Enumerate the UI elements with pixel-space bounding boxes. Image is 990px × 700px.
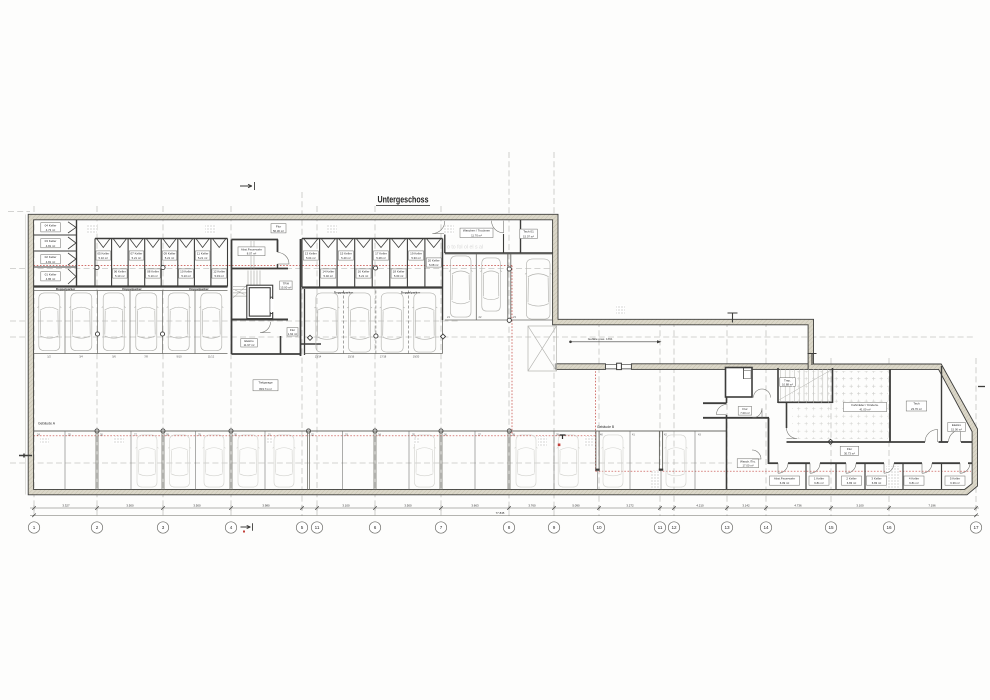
svg-text:5.04 m²: 5.04 m² xyxy=(306,256,316,260)
svg-text:3.500: 3.500 xyxy=(404,504,412,508)
svg-text:3.100: 3.100 xyxy=(856,504,864,508)
svg-text:20 Keller: 20 Keller xyxy=(428,259,440,263)
svg-text:10 Keller: 10 Keller xyxy=(180,270,192,274)
svg-text:56.30 m²: 56.30 m² xyxy=(273,229,284,233)
svg-text:4.81 m²: 4.81 m² xyxy=(46,260,56,264)
svg-text:5.40 m²: 5.40 m² xyxy=(341,256,351,260)
svg-text:30.73 m²: 30.73 m² xyxy=(844,451,855,455)
svg-text:02 Keller: 02 Keller xyxy=(45,255,57,259)
svg-text:2 Keller: 2 Keller xyxy=(846,477,856,481)
svg-text:3.500: 3.500 xyxy=(193,504,201,508)
svg-text:23.76 m²: 23.76 m² xyxy=(911,407,922,411)
svg-text:1.62 m²: 1.62 m² xyxy=(288,332,298,336)
svg-text:15.07 m²: 15.07 m² xyxy=(523,235,534,239)
svg-text:8: 8 xyxy=(508,525,511,530)
svg-text:3.100: 3.100 xyxy=(342,504,350,508)
svg-text:15: 15 xyxy=(828,525,834,530)
svg-text:2: 2 xyxy=(96,525,99,530)
svg-text:Tiefgarage: Tiefgarage xyxy=(258,380,273,384)
svg-text:Elektro: Elektro xyxy=(952,423,962,427)
svg-text:3.272: 3.272 xyxy=(626,504,634,508)
svg-text:5.10 m²: 5.10 m² xyxy=(115,274,125,278)
svg-text:7/8: 7/8 xyxy=(144,355,148,359)
svg-text:5.30 m²: 5.30 m² xyxy=(411,256,421,260)
svg-text:7.00 m²: 7.00 m² xyxy=(740,411,750,415)
svg-text:10: 10 xyxy=(596,525,602,530)
svg-text:3.327: 3.327 xyxy=(62,504,70,508)
svg-text:5.40 m²: 5.40 m² xyxy=(324,274,334,278)
svg-text:3.142: 3.142 xyxy=(742,504,750,508)
svg-text:4.210: 4.210 xyxy=(696,504,704,508)
svg-text:11: 11 xyxy=(315,525,320,530)
svg-text:3.500: 3.500 xyxy=(126,504,134,508)
svg-text:3.980: 3.980 xyxy=(262,504,270,508)
svg-text:01 Keller: 01 Keller xyxy=(45,272,57,276)
svg-text:4.736: 4.736 xyxy=(794,504,802,508)
svg-text:13 Keller: 13 Keller xyxy=(305,252,317,256)
svg-text:14 Keller: 14 Keller xyxy=(322,270,334,274)
svg-text:9: 9 xyxy=(553,525,556,530)
svg-text:Tech: Tech xyxy=(913,402,920,406)
svg-text:Doppelparker: Doppelparker xyxy=(56,287,76,291)
svg-text:7.196: 7.196 xyxy=(928,504,936,508)
svg-text:19 Keller: 19 Keller xyxy=(410,252,422,256)
svg-text:17 Keller: 17 Keller xyxy=(375,252,387,256)
svg-text:5.21 m²: 5.21 m² xyxy=(198,256,208,260)
svg-text:08 Keller: 08 Keller xyxy=(147,270,159,274)
svg-text:6.81 m²: 6.81 m² xyxy=(909,481,919,485)
svg-text:3.663: 3.663 xyxy=(471,504,479,508)
svg-text:1 Keller: 1 Keller xyxy=(814,477,824,481)
svg-text:5/6: 5/6 xyxy=(112,355,116,359)
svg-text:3.760: 3.760 xyxy=(528,504,536,508)
svg-text:9/10: 9/10 xyxy=(176,355,182,359)
svg-text:Gebäude A: Gebäude A xyxy=(38,422,56,426)
svg-text:10.88 m²: 10.88 m² xyxy=(782,382,793,386)
svg-text:15/16: 15/16 xyxy=(348,355,355,359)
svg-text:4.81 m²: 4.81 m² xyxy=(46,244,56,248)
svg-text:Gebäude B: Gebäude B xyxy=(597,425,615,429)
svg-text:15 Keller: 15 Keller xyxy=(340,252,352,256)
svg-text:4.73 m²: 4.73 m² xyxy=(46,228,56,232)
svg-text:5 Keller: 5 Keller xyxy=(950,477,960,481)
svg-text:17/18: 17/18 xyxy=(380,355,387,359)
svg-text:12 Keller: 12 Keller xyxy=(213,270,225,274)
svg-text:Waschen / Trocknen: Waschen / Trocknen xyxy=(463,229,491,233)
svg-text:Flur: Flur xyxy=(847,447,852,451)
svg-text:18 Keller: 18 Keller xyxy=(393,270,405,274)
svg-text:5.28 m²: 5.28 m² xyxy=(376,256,386,260)
svg-text:4: 4 xyxy=(230,525,233,530)
svg-text:13/14: 13/14 xyxy=(315,355,322,359)
svg-text:Gefälle max. 13%: Gefälle max. 13% xyxy=(588,337,613,341)
svg-text:3 Keller: 3 Keller xyxy=(871,477,881,481)
svg-text:17.00 m²: 17.00 m² xyxy=(742,464,753,468)
svg-text:15.00 m²: 15.00 m² xyxy=(951,428,962,432)
svg-text:16 Keller: 16 Keller xyxy=(358,270,370,274)
svg-text:11/12: 11/12 xyxy=(208,355,215,359)
svg-text:Doppelparker: Doppelparker xyxy=(401,291,421,295)
svg-text:5.090: 5.090 xyxy=(572,504,580,508)
svg-text:6.81 m²: 6.81 m² xyxy=(814,481,824,485)
svg-text:1: 1 xyxy=(33,525,36,530)
svg-text:5.10 m²: 5.10 m² xyxy=(181,274,191,278)
svg-text:5.21 m²: 5.21 m² xyxy=(359,274,369,278)
svg-text:5.30 m²: 5.30 m² xyxy=(394,274,404,278)
svg-text:Tech 01: Tech 01 xyxy=(523,230,534,234)
svg-text:6: 6 xyxy=(374,525,377,530)
svg-text:13: 13 xyxy=(724,525,730,530)
svg-text:Flur: Flur xyxy=(276,224,281,228)
svg-text:5: 5 xyxy=(301,525,304,530)
svg-text:5.08 m²: 5.08 m² xyxy=(429,263,439,267)
svg-text:6.83 m²: 6.83 m² xyxy=(872,481,882,485)
svg-text:o to fol ol el s al: o to fol ol el s al xyxy=(447,245,483,251)
svg-text:11.97 m²: 11.97 m² xyxy=(244,343,255,347)
svg-text:Doppelparker: Doppelparker xyxy=(122,287,142,291)
svg-text:3/4: 3/4 xyxy=(79,355,83,359)
svg-text:Abst.Feuerwehr: Abst.Feuerwehr xyxy=(774,477,795,481)
svg-text:07 Keller: 07 Keller xyxy=(130,252,142,256)
svg-text:4.86 m²: 4.86 m² xyxy=(46,277,56,281)
svg-text:41.00 m²: 41.00 m² xyxy=(859,408,870,412)
svg-text:Fahrräder / Kinderw.: Fahrräder / Kinderw. xyxy=(851,403,878,407)
svg-text:77.845: 77.845 xyxy=(496,511,505,515)
svg-text:Untergeschoss: Untergeschoss xyxy=(378,194,429,205)
svg-text:05 Keller: 05 Keller xyxy=(97,252,109,256)
svg-text:803.71 m²: 803.71 m² xyxy=(259,387,272,391)
svg-text:4 Keller: 4 Keller xyxy=(909,477,919,481)
svg-text:12: 12 xyxy=(671,525,677,530)
svg-text:Doppelparker: Doppelparker xyxy=(189,287,209,291)
svg-text:17: 17 xyxy=(973,525,979,530)
svg-text:5.21 m²: 5.21 m² xyxy=(165,256,175,260)
svg-text:3: 3 xyxy=(162,525,165,530)
svg-text:15.00 m²: 15.00 m² xyxy=(280,286,291,290)
svg-text:09 Keller: 09 Keller xyxy=(164,252,176,256)
svg-text:11.70 m²: 11.70 m² xyxy=(471,234,482,238)
svg-text:5.10 m²: 5.10 m² xyxy=(99,256,109,260)
svg-text:7: 7 xyxy=(440,525,443,530)
svg-text:6.39 m²: 6.39 m² xyxy=(950,481,960,485)
svg-text:6.09 m²: 6.09 m² xyxy=(780,481,790,485)
svg-text:11 Keller: 11 Keller xyxy=(197,252,209,256)
svg-text:04 Keller: 04 Keller xyxy=(45,223,57,227)
svg-text:14: 14 xyxy=(763,525,769,530)
svg-text:19/20: 19/20 xyxy=(413,355,420,359)
svg-text:11: 11 xyxy=(658,525,663,530)
svg-text:1/2: 1/2 xyxy=(47,355,51,359)
svg-text:8.07 m²: 8.07 m² xyxy=(247,252,257,256)
svg-text:06 Keller: 06 Keller xyxy=(114,270,126,274)
svg-text:5.21 m²: 5.21 m² xyxy=(132,256,142,260)
svg-text:6.83 m²: 6.83 m² xyxy=(847,481,857,485)
svg-text:16: 16 xyxy=(886,525,892,530)
svg-text:5.03 m²: 5.03 m² xyxy=(214,274,224,278)
svg-text:03 Keller: 03 Keller xyxy=(45,239,57,243)
svg-text:5.10 m²: 5.10 m² xyxy=(148,274,158,278)
